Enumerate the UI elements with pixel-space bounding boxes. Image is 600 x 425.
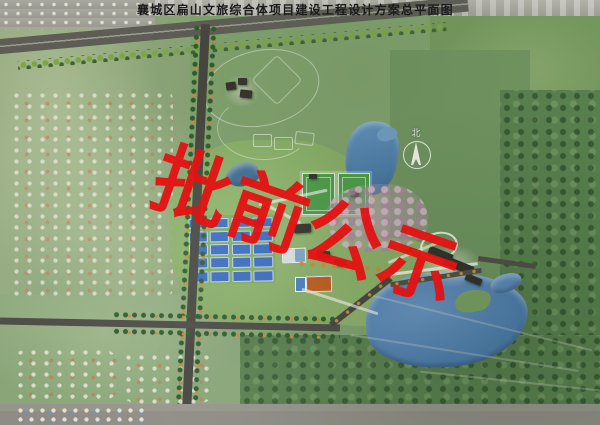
residential-area-south-1 [12,345,118,405]
building-block [238,78,247,85]
north-arrow: 北 [396,128,436,172]
tennis-court [254,270,273,281]
north-label: 北 [396,128,436,138]
building-block [225,81,236,90]
residential-area-south-2 [120,350,216,406]
site-plan-image: 北 批前公示 襄城区扁山文旅综合体项目建设工程设计方案总平面图 [0,0,600,425]
sketch-court [253,134,272,147]
tennis-court [210,257,229,268]
tennis-court [232,257,251,268]
compass-notch [413,159,419,165]
tennis-court [232,270,251,281]
urban-blocks-northwest [0,0,155,30]
sketch-court [294,131,314,146]
tennis-court [210,271,229,282]
sketch-court [274,137,293,150]
page-title: 襄城区扁山文旅综合体项目建设工程设计方案总平面图 [137,1,454,18]
south-buildings [15,406,145,425]
sketch-arc [217,96,311,160]
building-block [240,89,253,98]
building-block [309,174,317,179]
